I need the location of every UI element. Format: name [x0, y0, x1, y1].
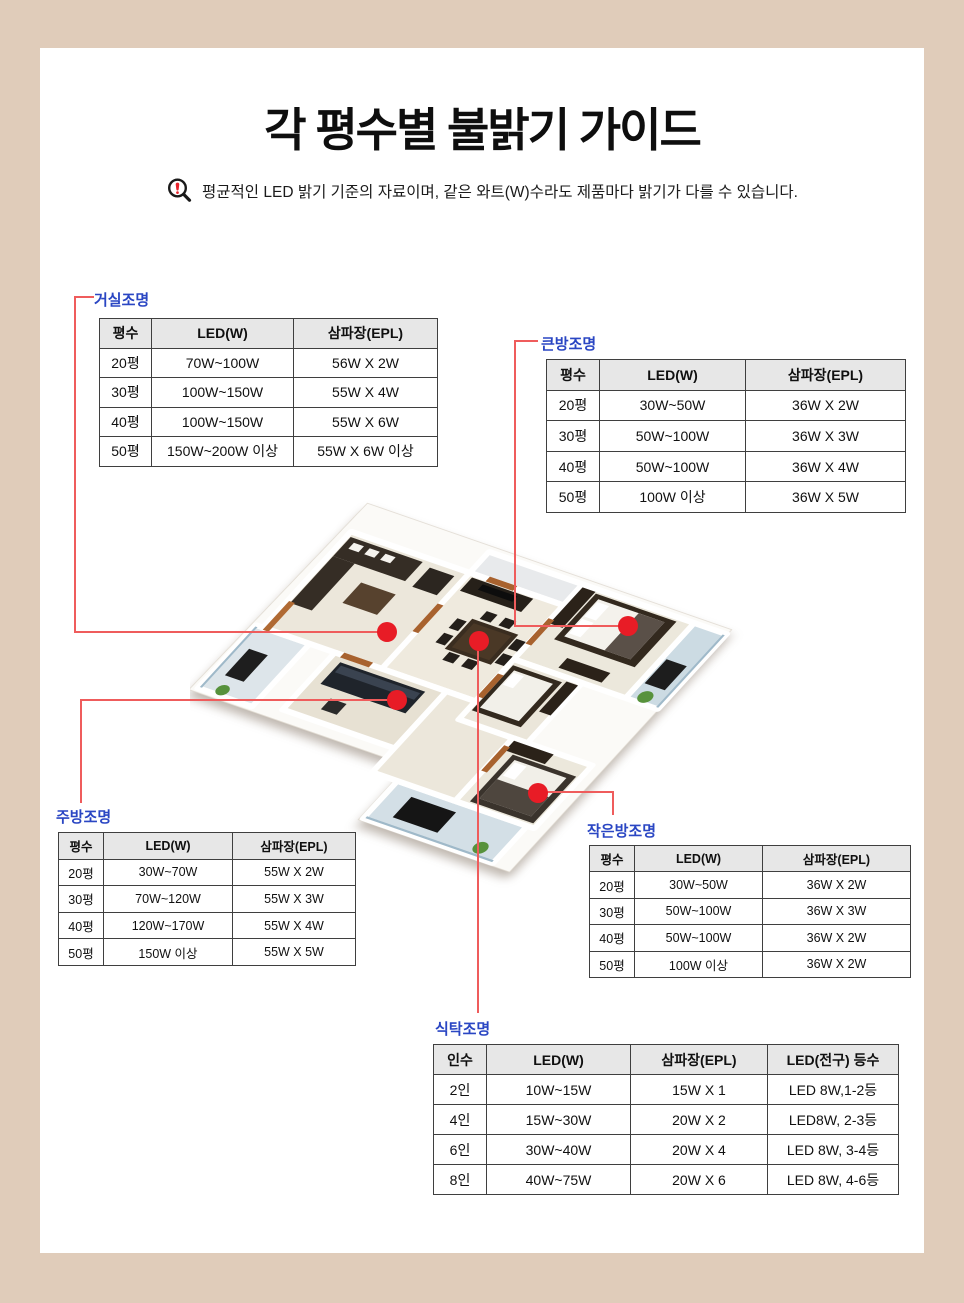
bigroom-lighting-table: 평수LED(W)삼파장(EPL)20평30W~50W36W X 2W30평50W…	[546, 359, 906, 513]
table-row: 2인10W~15W15W X 1LED 8W,1-2등	[434, 1075, 899, 1105]
table-cell: 30W~50W	[600, 390, 746, 421]
column-header: LED(W)	[635, 846, 763, 872]
notice-text: 평균적인 LED 밝기 기준의 자료이며, 같은 와트(W)수라도 제품마다 밝…	[202, 180, 798, 202]
connector-line-smallroom	[612, 791, 614, 815]
connector-line-bigroom	[514, 340, 538, 342]
column-header: 삼파장(EPL)	[233, 833, 356, 860]
table-cell: 36W X 3W	[763, 898, 911, 924]
table-header-row: 평수LED(W)삼파장(EPL)	[59, 833, 356, 860]
table-cell: 100W 이상	[635, 951, 763, 977]
table-row: 20평30W~50W36W X 2W	[590, 872, 911, 898]
bigroom-table-label: 큰방조명	[541, 333, 596, 354]
table-cell: 50W~100W	[635, 925, 763, 951]
table-cell: 20평	[547, 390, 600, 421]
living-lighting-table: 평수LED(W)삼파장(EPL)20평70W~100W56W X 2W30평10…	[99, 318, 438, 467]
connector-line-kitchen	[80, 699, 397, 701]
table-row: 30평50W~100W36W X 3W	[547, 421, 906, 452]
table-cell: 36W X 4W	[746, 451, 906, 482]
table-cell: 15W~30W	[487, 1105, 631, 1135]
table-cell: 40평	[100, 407, 152, 437]
magnifier-exclamation-icon	[166, 177, 193, 204]
small-room-marker-dot	[528, 783, 548, 803]
table-cell: 36W X 5W	[746, 482, 906, 513]
table-cell: 40W~75W	[487, 1165, 631, 1195]
table-cell: 50평	[59, 939, 104, 966]
connector-line-living	[74, 296, 94, 298]
living-table-label: 거실조명	[94, 289, 149, 310]
column-header: LED(전구) 등수	[768, 1045, 899, 1075]
table-header-row: 평수LED(W)삼파장(EPL)	[547, 360, 906, 391]
table-cell: 150W~200W 이상	[152, 437, 294, 467]
column-header: 삼파장(EPL)	[746, 360, 906, 391]
table-row: 8인40W~75W20W X 6LED 8W, 4-6등	[434, 1165, 899, 1195]
table-header-row: 평수LED(W)삼파장(EPL)	[100, 319, 438, 349]
table-cell: 50평	[547, 482, 600, 513]
table-row: 4인15W~30W20W X 2LED8W, 2-3등	[434, 1105, 899, 1135]
table-cell: LED8W, 2-3등	[768, 1105, 899, 1135]
page-title: 각 평수별 불밝기 가이드	[0, 94, 964, 160]
table-cell: LED 8W,1-2등	[768, 1075, 899, 1105]
column-header: LED(W)	[487, 1045, 631, 1075]
column-header: 평수	[100, 319, 152, 349]
column-header: LED(W)	[152, 319, 294, 349]
infographic-page: 각 평수별 불밝기 가이드 평균적인 LED 밝기 기준의 자료이며, 같은 와…	[0, 0, 964, 1303]
table-cell: 55W X 2W	[233, 859, 356, 886]
table-row: 40평50W~100W36W X 4W	[547, 451, 906, 482]
kitchen-marker-dot	[387, 690, 407, 710]
table-cell: 10W~15W	[487, 1075, 631, 1105]
table-cell: 55W X 4W	[294, 378, 438, 408]
table-row: 30평100W~150W55W X 4W	[100, 378, 438, 408]
table-cell: 20평	[59, 859, 104, 886]
notice-row: 평균적인 LED 밝기 기준의 자료이며, 같은 와트(W)수라도 제품마다 밝…	[0, 177, 964, 204]
connector-line-bigroom	[514, 625, 628, 627]
table-cell: 50평	[100, 437, 152, 467]
table-cell: 50W~100W	[635, 898, 763, 924]
table-cell: 30평	[547, 421, 600, 452]
table-cell: 15W X 1	[631, 1075, 768, 1105]
table-cell: 50W~100W	[600, 451, 746, 482]
table-cell: 40평	[547, 451, 600, 482]
connector-line-dining	[477, 641, 479, 1013]
column-header: 평수	[590, 846, 635, 872]
table-cell: 30W~40W	[487, 1135, 631, 1165]
table-cell: 56W X 2W	[294, 348, 438, 378]
column-header: LED(W)	[600, 360, 746, 391]
connector-line-kitchen	[80, 699, 82, 803]
connector-line-bigroom	[514, 340, 516, 626]
table-cell: 2인	[434, 1075, 487, 1105]
table-row: 50평100W 이상36W X 5W	[547, 482, 906, 513]
connector-line-living	[74, 296, 76, 633]
table-row: 20평30W~50W36W X 2W	[547, 390, 906, 421]
table-cell: 55W X 5W	[233, 939, 356, 966]
table-cell: 36W X 2W	[763, 951, 911, 977]
table-cell: 30W~70W	[104, 859, 233, 886]
table-row: 30평50W~100W36W X 3W	[590, 898, 911, 924]
table-cell: 36W X 2W	[746, 390, 906, 421]
column-header: 평수	[59, 833, 104, 860]
table-cell: 70W~120W	[104, 886, 233, 913]
table-header-row: 인수LED(W)삼파장(EPL)LED(전구) 등수	[434, 1045, 899, 1075]
table-cell: 55W X 6W 이상	[294, 437, 438, 467]
dining-table-label: 식탁조명	[435, 1018, 490, 1039]
table-cell: 55W X 3W	[233, 886, 356, 913]
column-header: 삼파장(EPL)	[294, 319, 438, 349]
table-cell: 6인	[434, 1135, 487, 1165]
table-cell: 50평	[590, 951, 635, 977]
table-cell: 50W~100W	[600, 421, 746, 452]
table-cell: 70W~100W	[152, 348, 294, 378]
table-cell: 30평	[590, 898, 635, 924]
table-cell: 30평	[59, 886, 104, 913]
table-header-row: 평수LED(W)삼파장(EPL)	[590, 846, 911, 872]
table-cell: 40평	[590, 925, 635, 951]
table-cell: 4인	[434, 1105, 487, 1135]
table-cell: 20W X 2	[631, 1105, 768, 1135]
column-header: LED(W)	[104, 833, 233, 860]
table-row: 50평150W~200W 이상55W X 6W 이상	[100, 437, 438, 467]
table-cell: 55W X 6W	[294, 407, 438, 437]
table-cell: 36W X 2W	[763, 925, 911, 951]
connector-line-living	[74, 631, 387, 633]
table-row: 50평100W 이상36W X 2W	[590, 951, 911, 977]
table-row: 20평30W~70W55W X 2W	[59, 859, 356, 886]
table-cell: 20평	[590, 872, 635, 898]
table-cell: 20W X 4	[631, 1135, 768, 1165]
table-cell: 30평	[100, 378, 152, 408]
dining-table-marker-dot	[469, 631, 489, 651]
table-cell: 100W~150W	[152, 407, 294, 437]
table-cell: 20평	[100, 348, 152, 378]
table-row: 40평50W~100W36W X 2W	[590, 925, 911, 951]
column-header: 평수	[547, 360, 600, 391]
table-cell: 100W~150W	[152, 378, 294, 408]
table-cell: 20W X 6	[631, 1165, 768, 1195]
table-row: 50평150W 이상55W X 5W	[59, 939, 356, 966]
smallroom-table-label: 작은방조명	[587, 820, 656, 841]
kitchen-table-label: 주방조명	[56, 806, 111, 827]
column-header: 삼파장(EPL)	[631, 1045, 768, 1075]
table-cell: 30W~50W	[635, 872, 763, 898]
table-cell: 36W X 2W	[763, 872, 911, 898]
smallroom-lighting-table: 평수LED(W)삼파장(EPL)20평30W~50W36W X 2W30평50W…	[589, 845, 911, 978]
table-row: 30평70W~120W55W X 3W	[59, 886, 356, 913]
table-cell: 8인	[434, 1165, 487, 1195]
kitchen-lighting-table: 평수LED(W)삼파장(EPL)20평30W~70W55W X 2W30평70W…	[58, 832, 356, 966]
table-cell: 100W 이상	[600, 482, 746, 513]
table-cell: LED 8W, 3-4등	[768, 1135, 899, 1165]
table-cell: 120W~170W	[104, 912, 233, 939]
big-room-marker-dot	[618, 616, 638, 636]
table-cell: LED 8W, 4-6등	[768, 1165, 899, 1195]
table-row: 20평70W~100W56W X 2W	[100, 348, 438, 378]
table-row: 40평120W~170W55W X 4W	[59, 912, 356, 939]
table-cell: 36W X 3W	[746, 421, 906, 452]
table-cell: 40평	[59, 912, 104, 939]
living-room-marker-dot	[377, 622, 397, 642]
dining-lighting-table: 인수LED(W)삼파장(EPL)LED(전구) 등수2인10W~15W15W X…	[433, 1044, 899, 1195]
table-cell: 150W 이상	[104, 939, 233, 966]
table-cell: 55W X 4W	[233, 912, 356, 939]
connector-line-smallroom	[538, 791, 614, 793]
column-header: 인수	[434, 1045, 487, 1075]
table-row: 40평100W~150W55W X 6W	[100, 407, 438, 437]
column-header: 삼파장(EPL)	[763, 846, 911, 872]
table-row: 6인30W~40W20W X 4LED 8W, 3-4등	[434, 1135, 899, 1165]
